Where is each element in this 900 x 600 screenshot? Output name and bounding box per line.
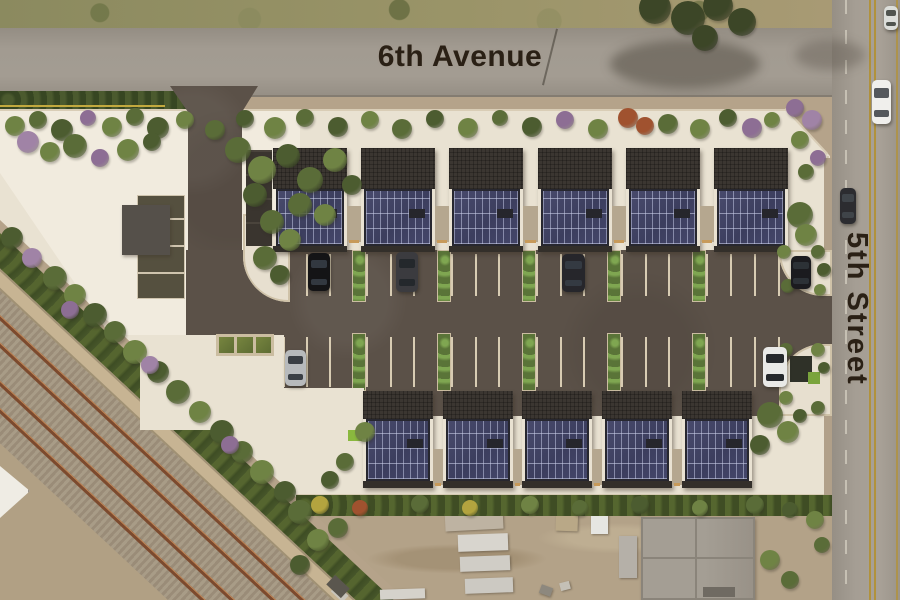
parking-stall-line [306, 337, 308, 387]
bush [818, 362, 830, 374]
bush [811, 401, 825, 415]
parked-car-dark [562, 254, 585, 292]
base [626, 246, 700, 252]
roof [626, 148, 700, 189]
bottom-row-unit [682, 391, 752, 488]
bush [117, 139, 139, 161]
vent [762, 209, 778, 218]
parking-stall-line [621, 337, 623, 387]
parking-stall-line [754, 337, 756, 387]
base [363, 481, 433, 488]
car-windshield [793, 262, 808, 269]
yard-trailer [465, 577, 513, 594]
parking-stall-line [621, 254, 623, 296]
bush [750, 435, 770, 455]
car-windshield [842, 212, 854, 218]
bush [692, 25, 718, 51]
unit-connector [513, 449, 522, 485]
bush [811, 343, 825, 357]
bush [781, 571, 799, 589]
bush [126, 108, 144, 126]
top-row-unit [714, 148, 788, 252]
tree-shadow [610, 40, 760, 88]
parking-stall-line [451, 254, 453, 296]
bush [166, 380, 190, 404]
bush [314, 204, 336, 226]
roof-vent [703, 587, 735, 597]
bush [236, 110, 254, 128]
bush [22, 248, 42, 268]
utility-pipe [515, 483, 520, 486]
utility-pipe [349, 240, 359, 243]
bike-storage-cell [219, 337, 234, 353]
vent [726, 439, 742, 448]
bush [392, 119, 412, 139]
bush [779, 391, 793, 405]
vent [566, 439, 582, 448]
bush [802, 110, 822, 130]
unit-connector [523, 206, 538, 242]
bush [793, 409, 807, 423]
parking-stall-line [475, 337, 477, 387]
car-windshield [766, 374, 784, 380]
parking-planter-strip [352, 250, 366, 302]
bush [764, 112, 780, 128]
north-wall [0, 109, 790, 111]
bush [225, 137, 251, 163]
base [522, 481, 592, 488]
yard-trailer [458, 533, 509, 552]
bush [786, 99, 804, 117]
base [361, 246, 435, 252]
car-windshield [311, 260, 328, 268]
car-windshield [842, 194, 854, 202]
bush [189, 401, 211, 423]
solar [605, 419, 669, 481]
bush [307, 529, 329, 551]
bush [43, 266, 67, 290]
bush [791, 131, 809, 149]
parking-planter-strip [692, 333, 706, 391]
car-windshield [565, 261, 582, 269]
bush [91, 149, 109, 167]
yard-trailer [380, 588, 425, 600]
utility-pipe [614, 240, 624, 243]
bike-storage-cell [256, 337, 271, 353]
bush [458, 118, 478, 138]
utility-pipe [702, 240, 712, 243]
unit-connector [433, 449, 443, 485]
parked-car-black [308, 253, 330, 291]
parking-planter-strip [692, 250, 706, 302]
bush [205, 120, 225, 140]
vent [646, 439, 662, 448]
parking-stall-line [536, 254, 538, 296]
car-windshield [766, 354, 784, 363]
parking-stall-line [730, 337, 732, 387]
base [682, 481, 752, 488]
bush [274, 481, 296, 503]
bush [260, 210, 284, 234]
parking-planter-strip [352, 333, 366, 391]
parking-planter-strip [437, 250, 451, 302]
parking-planter-strip [522, 250, 536, 302]
bush [411, 495, 429, 513]
tree-shadow [795, 40, 865, 70]
parking-planter-strip [607, 250, 621, 302]
roof [361, 148, 435, 189]
utility-pipe [674, 483, 680, 486]
bush [355, 422, 375, 442]
parking-stall-line [451, 337, 453, 387]
roof-seam [641, 557, 755, 559]
walkway [282, 388, 364, 430]
unit-connector [435, 206, 449, 242]
street-car-partial [884, 6, 898, 30]
car-windshield [288, 374, 304, 380]
yard-trailer [460, 555, 510, 572]
parking-stall-line [730, 254, 732, 296]
bush [176, 111, 194, 129]
car-windshield [886, 22, 897, 26]
bush [658, 114, 678, 134]
car-windshield [311, 279, 328, 285]
bush [728, 8, 756, 36]
parking-planter-strip [437, 333, 451, 391]
unit-connector [672, 449, 682, 485]
bush [782, 502, 798, 518]
bush [288, 500, 312, 524]
street-car-dark [840, 188, 856, 224]
bush [40, 142, 60, 162]
bush [29, 111, 47, 129]
car-windshield [793, 278, 808, 283]
solar [366, 419, 430, 481]
car-windshield [288, 356, 304, 364]
bush [297, 167, 323, 193]
parking-stall-line [498, 254, 500, 296]
bush [336, 453, 354, 471]
parked-car-island [791, 256, 811, 289]
parking-stall-line [706, 337, 708, 387]
parking-stall-line [390, 337, 392, 387]
bush [690, 119, 710, 139]
bush [276, 144, 300, 168]
bush [250, 460, 274, 484]
car-windshield [874, 110, 888, 117]
parking-planter-strip [522, 333, 536, 391]
utility-pipe [525, 240, 536, 243]
bush [742, 118, 762, 138]
street-label: 5th Street [840, 232, 873, 386]
island-planter-box [808, 372, 820, 384]
top-row-unit [626, 148, 700, 252]
car-windshield [565, 280, 582, 286]
bush [618, 108, 638, 128]
parking-stall-line [645, 254, 647, 296]
bush [631, 496, 649, 514]
bush [811, 245, 825, 259]
unit-connector [347, 206, 361, 242]
parking-stall-line [706, 254, 708, 296]
solar [525, 419, 589, 481]
bush [817, 263, 831, 277]
bush [143, 133, 161, 151]
avenue-label: 6th Avenue [330, 40, 590, 74]
parked-car-silver [285, 350, 306, 386]
warehouse [641, 517, 755, 600]
bush [810, 150, 826, 166]
bush [814, 284, 826, 296]
car-windshield [399, 259, 416, 268]
bush [777, 421, 799, 443]
bush [63, 134, 87, 158]
parking-stall-line [475, 254, 477, 296]
roof [363, 391, 433, 419]
bush [352, 500, 368, 516]
bush [798, 164, 814, 180]
bush [746, 496, 764, 514]
bottom-row-unit [602, 391, 672, 488]
roof [522, 391, 592, 419]
base [602, 481, 672, 488]
bike-storage [216, 334, 274, 356]
parking-stall-line [668, 254, 670, 296]
bush [777, 245, 791, 259]
bush [814, 537, 830, 553]
bush [636, 117, 654, 135]
parking-stall-line [583, 337, 585, 387]
roof [538, 148, 612, 189]
street-edge-line [896, 0, 898, 600]
unit-connector [700, 206, 714, 242]
parking-stall-line [366, 254, 368, 296]
aerial-site-plan: 6th Avenue 5th Street [0, 0, 900, 600]
bush [61, 301, 79, 319]
roof [714, 148, 788, 189]
bike-storage-cell [237, 337, 252, 353]
bush [556, 111, 574, 129]
car-windshield [399, 279, 416, 285]
bush [279, 229, 301, 251]
bush [328, 117, 348, 137]
bush [426, 110, 444, 128]
vent [497, 209, 513, 218]
bush [806, 511, 824, 529]
bush [719, 109, 737, 127]
bush [572, 500, 588, 516]
roof [602, 391, 672, 419]
solar [446, 419, 510, 481]
bush [290, 555, 310, 575]
parking-stall-line [536, 337, 538, 387]
concrete-pad [122, 205, 170, 255]
parking-stall-line [366, 337, 368, 387]
bush [311, 496, 329, 514]
top-row-unit [449, 148, 523, 252]
bush [492, 110, 508, 126]
bottom-row-unit [522, 391, 592, 488]
parked-car-gray [396, 252, 418, 292]
parking-stall-line [413, 337, 415, 387]
bush [83, 303, 107, 327]
utility-pipe [437, 240, 447, 243]
vent [407, 439, 423, 448]
bush [104, 321, 126, 343]
bush [243, 183, 267, 207]
bush [328, 518, 348, 538]
unit-connector [592, 449, 602, 485]
bottom-row-unit [363, 391, 433, 488]
unit-connector [612, 206, 626, 242]
base [449, 246, 523, 252]
bush [288, 193, 312, 217]
parked-car-white [763, 347, 787, 387]
vent [409, 209, 425, 218]
bush [321, 471, 339, 489]
parking-stall-line [329, 337, 331, 387]
bush [342, 175, 362, 195]
bush [692, 500, 708, 516]
bush [361, 111, 379, 129]
solar [685, 419, 749, 481]
car-windshield [886, 10, 897, 15]
bush [323, 148, 347, 172]
bush [521, 496, 539, 514]
bush [248, 156, 276, 184]
bush [760, 550, 780, 570]
parking-stall-line [754, 254, 756, 296]
bush [141, 356, 159, 374]
bush [264, 117, 286, 139]
bush [522, 117, 542, 137]
bush [270, 265, 290, 285]
parking-planter-strip [607, 333, 621, 391]
bush [296, 109, 314, 127]
car-windshield [874, 88, 888, 98]
roof [449, 148, 523, 189]
bush [221, 436, 239, 454]
utility-pipe [435, 483, 441, 486]
parking-stall-line [668, 337, 670, 387]
top-row-unit [361, 148, 435, 252]
bush [80, 110, 96, 126]
street-van-white [872, 80, 891, 124]
vent [586, 209, 602, 218]
bush [1, 227, 23, 249]
bush [102, 117, 122, 137]
vent [487, 439, 503, 448]
parking-stall-line [645, 337, 647, 387]
base [443, 481, 513, 488]
roof [443, 391, 513, 419]
base [538, 246, 612, 252]
parking-stall-line [390, 254, 392, 296]
roof [682, 391, 752, 419]
yard-trailer [619, 536, 637, 578]
boundary-marker-line [0, 105, 165, 107]
bush [462, 500, 478, 516]
parking-stall-line [498, 337, 500, 387]
vent [674, 209, 690, 218]
bottom-row-unit [443, 391, 513, 488]
bush [795, 224, 817, 246]
bush [17, 131, 39, 153]
top-row-unit [538, 148, 612, 252]
parking-stall-line [560, 337, 562, 387]
bush [588, 119, 608, 139]
utility-pipe [594, 483, 600, 486]
